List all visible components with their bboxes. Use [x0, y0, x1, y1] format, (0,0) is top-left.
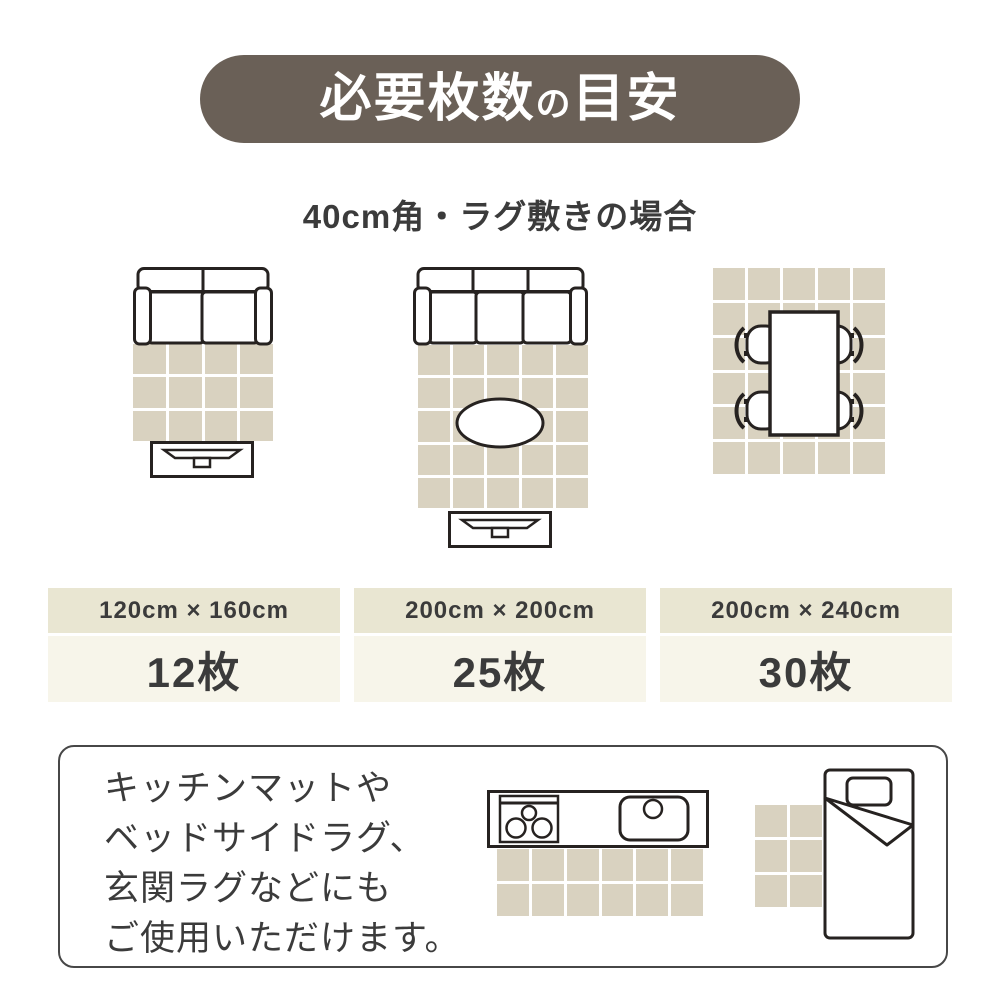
usage-note-text: キッチンマットや ベッドサイドラグ、 玄関ラグなどにも ご使用いただけます。	[104, 764, 464, 964]
rug-tile	[453, 478, 485, 508]
table-column-small: 120cm × 160cm 12枚	[48, 588, 340, 702]
rug-tile	[532, 849, 564, 881]
sofa-2seat-icon	[133, 266, 273, 346]
tile-count: 12枚	[48, 636, 340, 702]
bedside-rug-grid	[755, 805, 822, 907]
size-header: 200cm × 240cm	[660, 588, 952, 633]
tv-board-icon	[150, 441, 254, 478]
rug-tile	[602, 884, 634, 916]
rug-tile	[556, 478, 588, 508]
rug-tile	[418, 445, 450, 475]
rug-tile	[556, 345, 588, 375]
subtitle: 40cm角・ラグ敷きの場合	[0, 190, 1000, 238]
tile-count: 30枚	[660, 636, 952, 702]
rug-tile	[205, 344, 238, 374]
rug-tile	[755, 805, 787, 837]
rug-tile	[453, 345, 485, 375]
rug-tile	[790, 875, 822, 907]
kitchen-counter-icon	[487, 790, 709, 848]
rug-tile	[240, 411, 273, 441]
rug-tile	[671, 884, 703, 916]
rug-tile	[556, 411, 588, 441]
rug-tile	[497, 884, 529, 916]
page-title: 必要枚数の目安	[319, 73, 680, 125]
rug-tile	[418, 378, 450, 408]
rug-grid-small-living	[133, 344, 273, 441]
rug-tile	[636, 884, 668, 916]
rug-tile	[418, 411, 450, 441]
rug-tile	[169, 377, 202, 407]
rug-tile	[487, 345, 519, 375]
rug-tile	[636, 849, 668, 881]
rug-tile	[169, 411, 202, 441]
dining-set-icon	[713, 268, 885, 474]
rug-tile	[240, 377, 273, 407]
kitchen-mat-grid	[497, 849, 703, 916]
title-banner: 必要枚数の目安	[200, 55, 800, 143]
rug-tile	[205, 377, 238, 407]
tv-board-icon	[448, 511, 552, 548]
rug-tile	[240, 344, 273, 374]
rug-tile	[133, 377, 166, 407]
tile-count: 25枚	[354, 636, 646, 702]
rug-tile	[790, 840, 822, 872]
rug-tile	[755, 875, 787, 907]
rug-tile	[418, 345, 450, 375]
rug-tile	[487, 478, 519, 508]
rug-tile	[133, 411, 166, 441]
table-column-medium: 200cm × 200cm 25枚	[354, 588, 646, 702]
rug-tile	[602, 849, 634, 881]
rug-tile	[133, 344, 166, 374]
coffee-table-icon	[454, 396, 546, 450]
rug-tile	[671, 849, 703, 881]
sofa-3seat-icon	[413, 266, 588, 346]
rug-tile	[556, 378, 588, 408]
rug-tile	[790, 805, 822, 837]
rug-tile	[497, 849, 529, 881]
rug-tile	[418, 478, 450, 508]
table-column-large: 200cm × 240cm 30枚	[660, 588, 952, 702]
rug-tile	[522, 478, 554, 508]
rug-tile	[567, 849, 599, 881]
rug-tile	[205, 411, 238, 441]
rug-tile	[755, 840, 787, 872]
dining-table-icon	[770, 312, 838, 435]
bed-icon	[823, 768, 915, 940]
rug-tile	[567, 884, 599, 916]
size-header: 120cm × 160cm	[48, 588, 340, 633]
size-header: 200cm × 200cm	[354, 588, 646, 633]
infographic-page: 必要枚数の目安 40cm角・ラグ敷きの場合	[0, 0, 1000, 1000]
rug-tile	[522, 345, 554, 375]
rug-tile	[169, 344, 202, 374]
rug-tile	[556, 445, 588, 475]
rug-tile	[532, 884, 564, 916]
